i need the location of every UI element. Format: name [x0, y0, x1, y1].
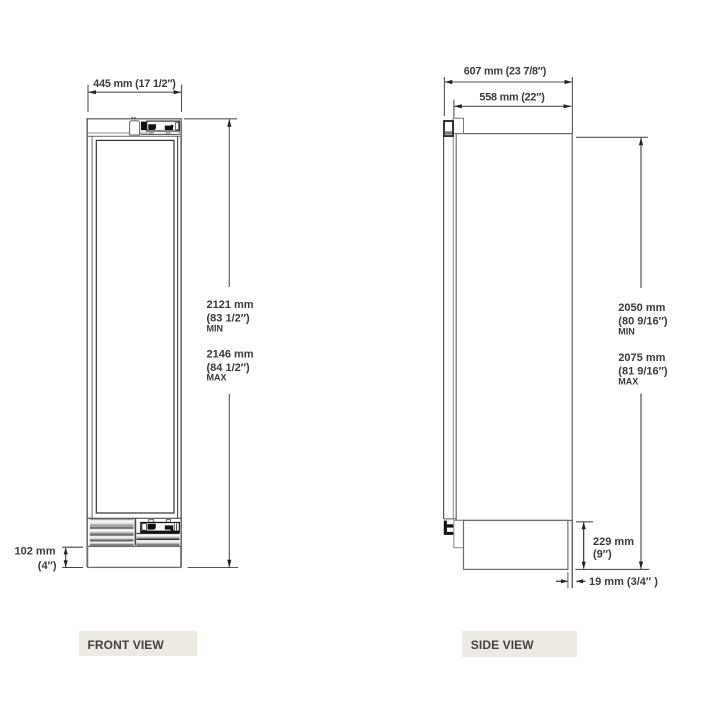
- svg-text:19 mm (3/4″ ): 19 mm (3/4″ ): [589, 576, 658, 588]
- svg-text:607 mm (23 7/8″): 607 mm (23 7/8″): [464, 66, 547, 78]
- svg-text:229 mm: 229 mm: [593, 536, 634, 548]
- svg-text:MAX: MAX: [618, 376, 638, 386]
- svg-text:(9″): (9″): [593, 548, 612, 560]
- svg-text:MIN: MIN: [207, 323, 224, 333]
- svg-text:2050 mm: 2050 mm: [618, 302, 665, 314]
- svg-text:2121 mm: 2121 mm: [207, 299, 254, 311]
- svg-text:(4″): (4″): [38, 560, 57, 572]
- svg-text:102 mm: 102 mm: [15, 546, 56, 558]
- svg-text:558 mm (22″): 558 mm (22″): [479, 91, 545, 103]
- svg-text:2146 mm: 2146 mm: [207, 348, 254, 360]
- svg-text:445 mm (17 1/2″): 445 mm (17 1/2″): [93, 78, 176, 90]
- svg-text:MIN: MIN: [618, 326, 635, 336]
- svg-text:2075 mm: 2075 mm: [618, 352, 665, 364]
- svg-text:MAX: MAX: [207, 373, 227, 383]
